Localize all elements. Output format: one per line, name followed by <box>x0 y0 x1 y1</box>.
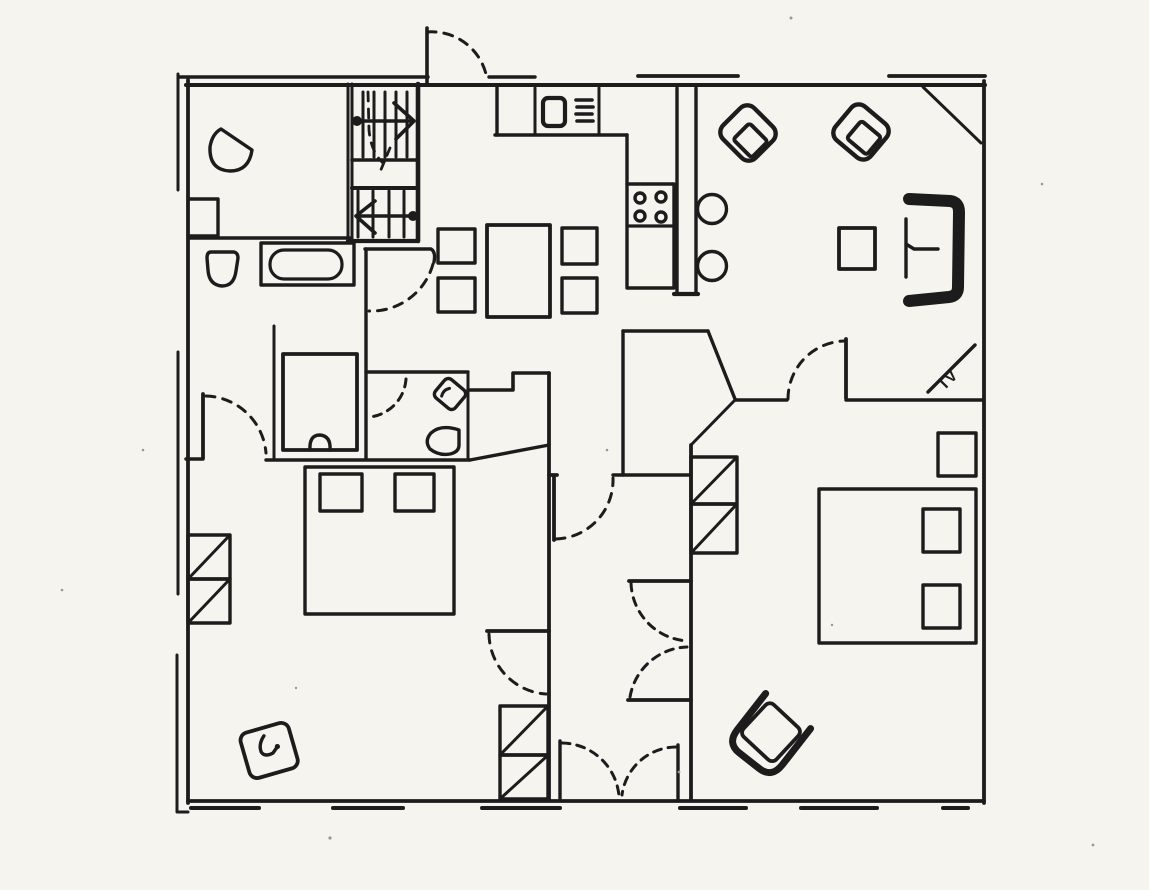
svg-text:TV: TV <box>935 367 962 394</box>
